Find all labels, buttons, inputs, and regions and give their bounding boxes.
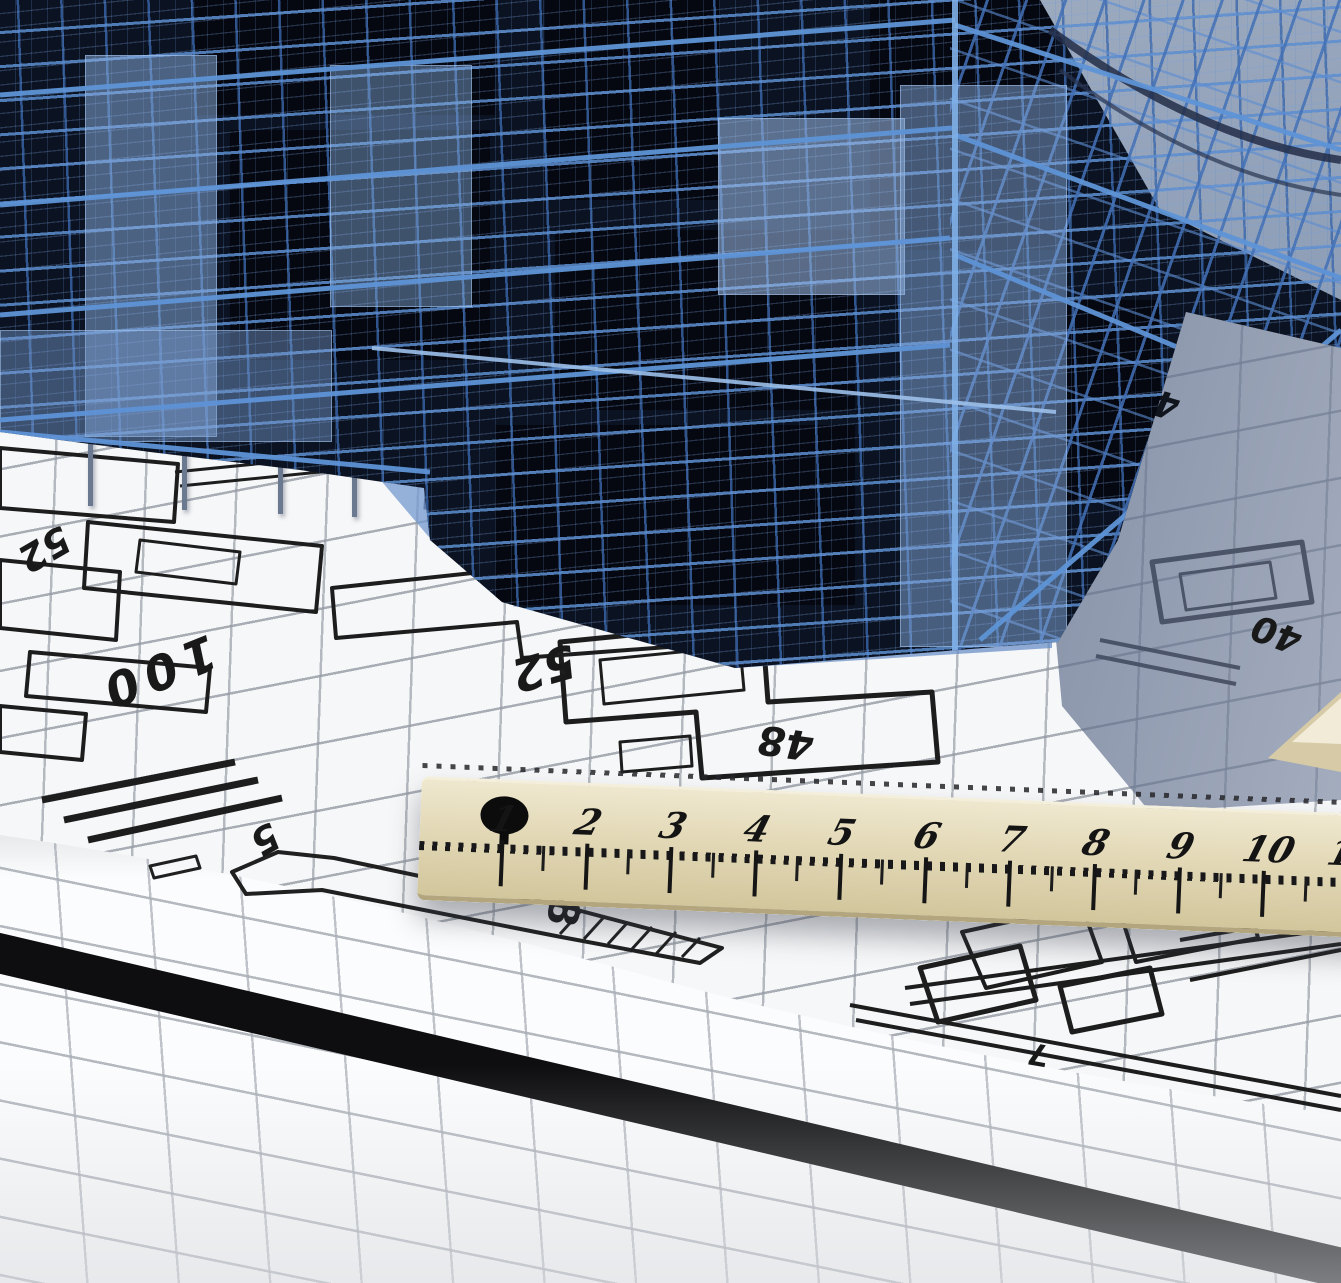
ruler-half-tick [1219, 873, 1223, 898]
ruler-number: 3 [645, 804, 701, 847]
ruler-half-tick [541, 846, 545, 871]
ruler-major-tick [584, 844, 590, 890]
ruler-major-tick [1006, 861, 1012, 907]
ruler-major-tick [922, 857, 928, 903]
ruler-major-tick [752, 850, 758, 896]
ruler-number: 7 [984, 818, 1040, 861]
ruler-major-tick [1091, 864, 1097, 910]
ruler-number: 2 [560, 801, 616, 844]
ruler-number: 11 [1323, 832, 1341, 875]
ruler-half-tick [965, 863, 969, 888]
ruler-major-tick [1176, 867, 1182, 913]
ruler-number: 9 [1153, 825, 1209, 868]
ruler-half-tick [1134, 870, 1138, 895]
ruler-half-tick [795, 856, 799, 881]
ruler-half-tick [880, 859, 884, 884]
ruler-number: 6 [899, 815, 955, 858]
ruler-number: 8 [1068, 821, 1124, 864]
ruler-major-tick [668, 847, 674, 893]
ruler-number: 10 [1238, 828, 1294, 871]
ruler-number: 4 [729, 808, 785, 851]
ruler-half-tick [1304, 877, 1308, 902]
ruler-major-tick [499, 840, 505, 886]
ruler-major-tick [837, 854, 843, 900]
blueprint-scene: 40 25 25 [0, 0, 1341, 1283]
ruler-number: 5 [814, 811, 870, 854]
ruler-half-tick [1050, 866, 1054, 891]
ruler-half-tick [626, 849, 630, 874]
rolled-sheet-plan-marks [0, 0, 1341, 1283]
ruler-major-tick [1260, 871, 1266, 917]
ruler-half-tick [711, 853, 715, 878]
